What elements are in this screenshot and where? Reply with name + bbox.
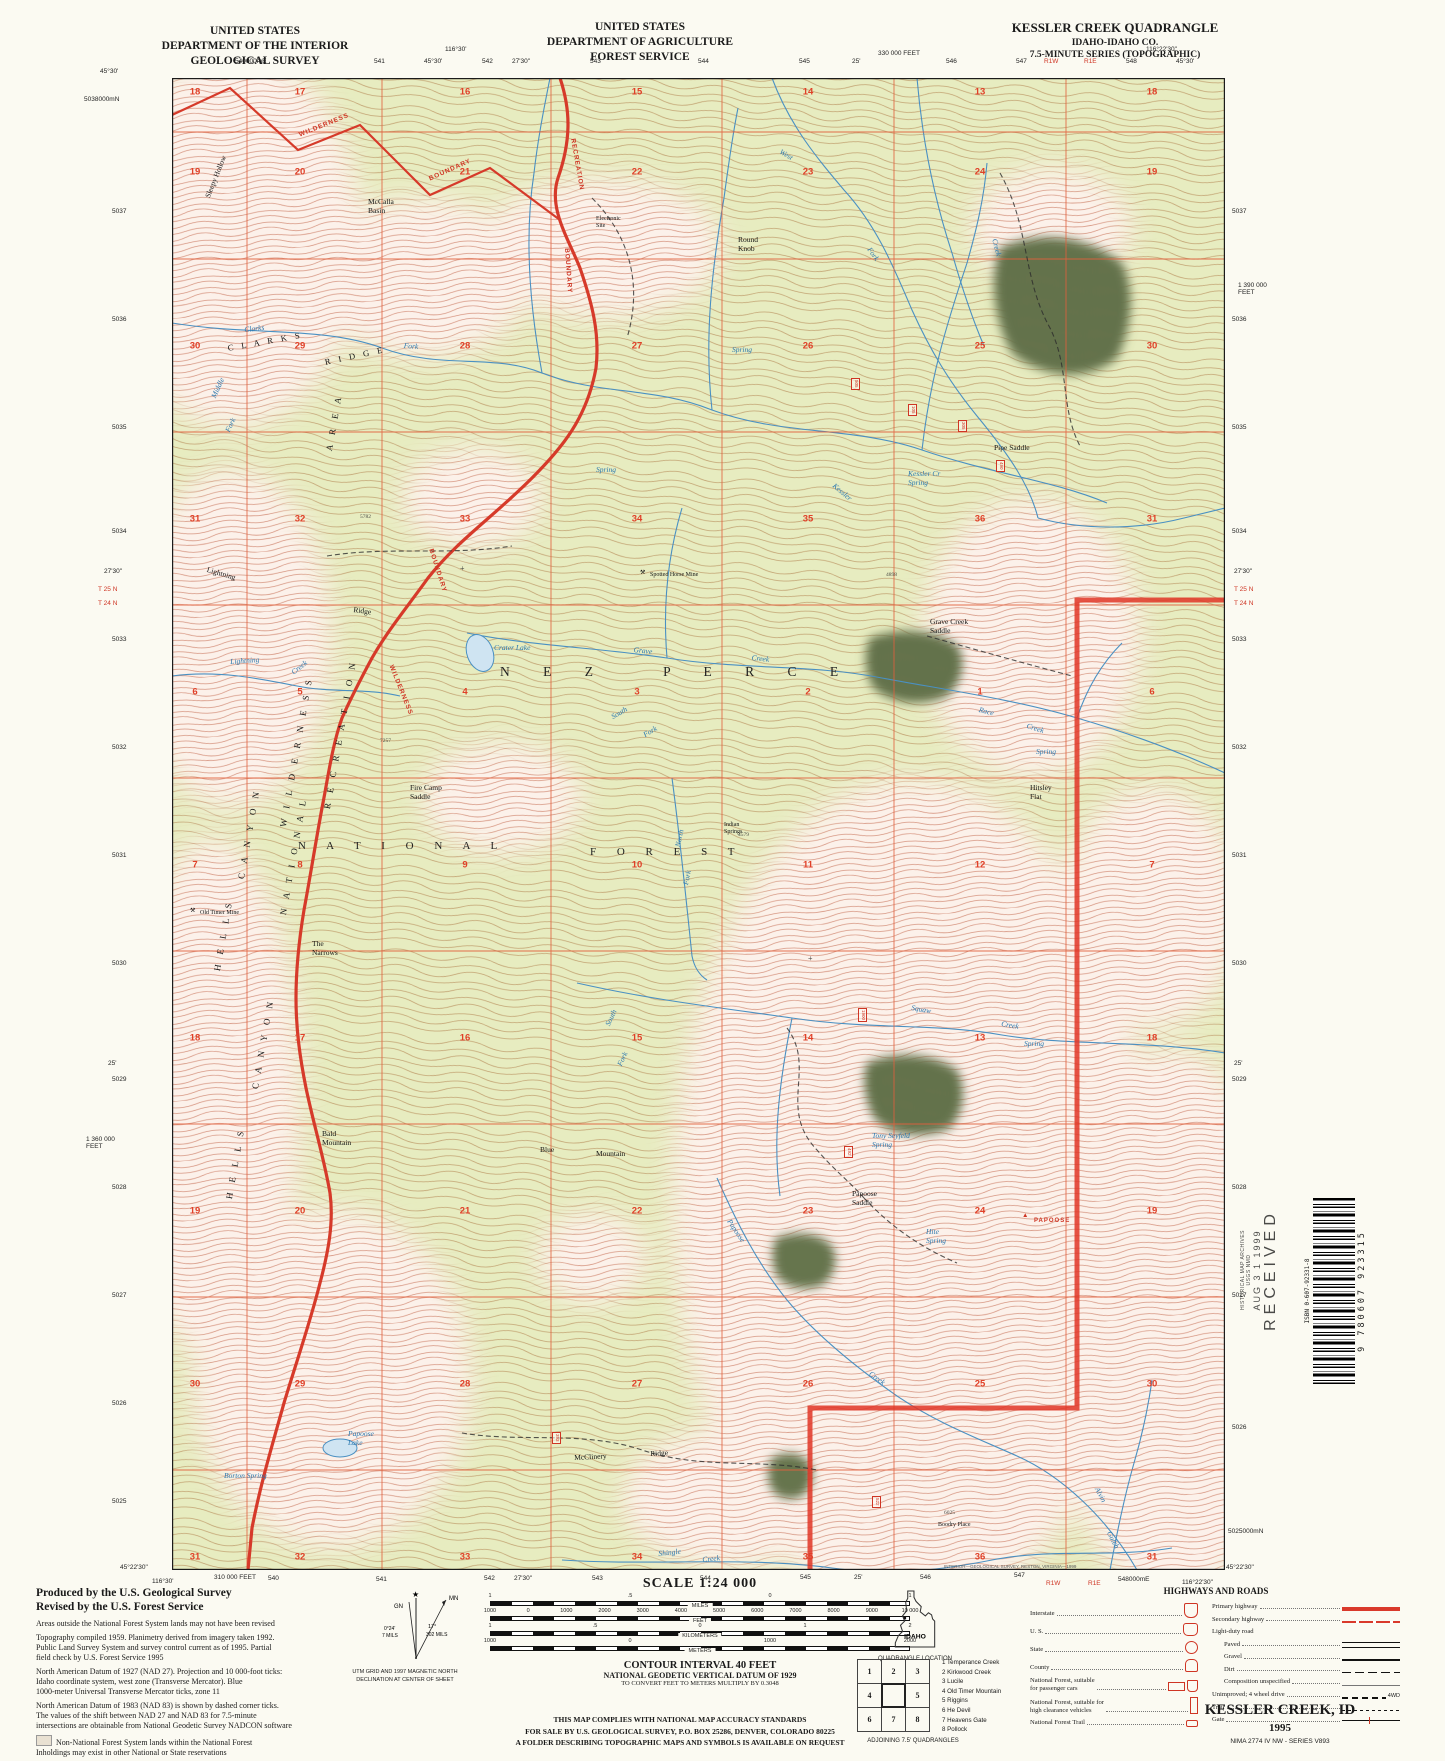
legend-row: Gravel [1212, 1653, 1400, 1661]
map-label: ▲ [1022, 1212, 1029, 1219]
svg-text:GN: GN [394, 1604, 403, 1610]
stamp-line: RECEIVED [1262, 1174, 1280, 1366]
section-number: 19 [190, 167, 201, 178]
true-north-star-icon: ★ [412, 1590, 419, 1599]
scale-tick-label: 0 [768, 1593, 771, 1599]
edge-label: 5036 [1232, 316, 1246, 323]
section-number: 4 [462, 687, 467, 698]
legend-leader [1287, 1696, 1340, 1697]
edge-label: 45°30' [100, 68, 118, 75]
legend-row: Unimproved; 4 wheel drive4WD [1212, 1691, 1400, 1699]
legend-label: National Forest, suitable for passenger … [1030, 1677, 1095, 1692]
edge-label: 5036 [112, 316, 126, 323]
note-paragraph: Non-National Forest System lands within … [36, 1735, 371, 1758]
section-number: 18 [1147, 1033, 1158, 1044]
map-label: 4579 [738, 832, 749, 838]
state-icon [1185, 1641, 1198, 1654]
section-number: 7 [192, 860, 197, 871]
legend-leader [1057, 1615, 1182, 1616]
section-number: 24 [975, 1206, 986, 1217]
edge-label: T 24 N [1234, 600, 1253, 607]
adjoining-cell: 1 [857, 1659, 882, 1684]
quad-name: KESSLER CREEK QUADRANGLE [890, 20, 1340, 37]
adjoining-caption: ADJOINING 7.5' QUADRANGLES [818, 1738, 1008, 1744]
legend-label: National Forest Trail [1030, 1719, 1085, 1727]
map-label: The Narrows [312, 940, 338, 957]
section-number: 34 [632, 1552, 643, 1563]
section-number: 9 [462, 860, 467, 871]
section-number: 31 [1147, 514, 1158, 525]
map-label: Ridge [650, 1449, 668, 1459]
section-number: 23 [803, 167, 814, 178]
edge-label: 540 [268, 1575, 279, 1582]
scale-tick-label: 0 [698, 1623, 701, 1629]
section-number: 15 [632, 1033, 643, 1044]
section-number: 25 [975, 1379, 986, 1390]
section-number: 16 [460, 1033, 471, 1044]
edge-label: 27'30" [1234, 568, 1252, 575]
adjoining-cell [881, 1683, 906, 1708]
legend-label: National Forest, suitable for high clear… [1030, 1699, 1104, 1714]
sale-note: FOR SALE BY U.S. GEOLOGICAL SURVEY, P.O.… [430, 1726, 930, 1738]
header-line: DEPARTMENT OF AGRICULTURE [470, 35, 810, 50]
edge-label: 5026 [1232, 1424, 1246, 1431]
map-artwork [172, 78, 1225, 1570]
legend-note: 4WD [1388, 1693, 1400, 1699]
edge-label: 25' [1234, 1060, 1242, 1067]
section-number: 18 [190, 87, 201, 98]
section-number: 6 [1149, 687, 1154, 698]
idaho-outline-icon: IDAHO [892, 1590, 938, 1648]
edge-label: 5026 [112, 1400, 126, 1407]
section-number: 30 [190, 341, 201, 352]
edge-label: R1W [1044, 58, 1058, 65]
legend-leader [1292, 1683, 1340, 1684]
legend-row: U. S. [1030, 1623, 1198, 1636]
section-number: 15 [632, 87, 643, 98]
map-label: PAPOOSE [1034, 1218, 1070, 1225]
section-number: 7 [1149, 860, 1154, 871]
map-series: NIMA 2774 IV NW - SERIES V893 [1145, 1738, 1415, 1745]
map-year: 1995 [1145, 1722, 1415, 1734]
edge-label: 5037 [1232, 208, 1246, 215]
section-number: 27 [632, 1379, 643, 1390]
edge-label: 45°22'30" [1226, 1564, 1254, 1571]
legend-leader [1242, 1645, 1340, 1646]
legend-label: Paved [1224, 1641, 1240, 1649]
map-label: + [460, 564, 465, 573]
edge-label: 541 [374, 58, 385, 65]
legend-row: Light-duty road [1212, 1628, 1400, 1636]
paved-icon [1342, 1642, 1400, 1648]
header-line: DEPARTMENT OF THE INTERIOR [85, 39, 425, 54]
map-label: Borton Spring [224, 1472, 267, 1481]
edge-label: 5035 [1232, 424, 1246, 431]
map-label: ⚒ [190, 908, 195, 915]
legend-leader [1045, 1633, 1181, 1634]
section-number: 33 [460, 514, 471, 525]
map-name: KESSLER CREEK, ID [1145, 1702, 1415, 1719]
dirt-icon [1342, 1672, 1400, 1674]
map-label: Grave Creek Saddle [930, 618, 968, 635]
section-number: 14 [803, 87, 814, 98]
section-number: 23 [803, 1206, 814, 1217]
section-number: 30 [1147, 1379, 1158, 1390]
map-label: Creek [751, 654, 769, 664]
map-label: Papoose Lake [348, 1430, 374, 1447]
section-number: 31 [1147, 1552, 1158, 1563]
svg-text:IDAHO: IDAHO [904, 1634, 926, 1641]
edge-label: 5025 [112, 1498, 126, 1505]
scale-tick-label: 1 [803, 1623, 806, 1629]
edge-label: 5032 [1232, 744, 1246, 751]
legend-row: Composition unspecified [1212, 1678, 1400, 1686]
note-paragraph: Topography compiled 1959. Planimetry der… [36, 1633, 371, 1663]
svg-text:7 MILS: 7 MILS [382, 1633, 399, 1639]
edge-label: 5025000mN [1228, 1528, 1263, 1535]
scale-tick-label: 2000 [598, 1608, 610, 1614]
legend-leader [1045, 1651, 1183, 1652]
legend-label: Dirt [1224, 1666, 1235, 1674]
nf-shield-icon [1187, 1680, 1198, 1692]
legend-label: Unimproved; 4 wheel drive [1212, 1691, 1285, 1699]
roads-legend-title: HIGHWAYS AND ROADS [1030, 1586, 1402, 1596]
edge-label: 5031 [112, 852, 126, 859]
county-icon [1185, 1659, 1198, 1672]
edge-label: 116°22'30" [1182, 1579, 1213, 1586]
edge-label: 330 000 FEET [878, 50, 920, 57]
usgs-topo-sheet: UNITED STATES DEPARTMENT OF THE INTERIOR… [0, 0, 1445, 1761]
stamp-line: AUG 3 1 1999 [1252, 1174, 1262, 1366]
section-number: 18 [190, 1033, 201, 1044]
map-label: Papoose Saddle [852, 1190, 877, 1207]
legend-label: County [1030, 1664, 1049, 1672]
adjoining-cell: 6 [857, 1707, 882, 1732]
section-number: 8 [297, 860, 302, 871]
section-number: 28 [460, 1379, 471, 1390]
section-number: 33 [460, 1552, 471, 1563]
edge-label: 5034 [112, 528, 126, 535]
scale-tick-label: 1000 [764, 1638, 776, 1644]
trail-number-marker: 505 [851, 378, 860, 390]
section-number: 20 [295, 1206, 306, 1217]
map-label: F O R E S T [590, 846, 744, 859]
edge-label: 5030 [112, 960, 126, 967]
accuracy-note: THIS MAP COMPLIES WITH NATIONAL MAP ACCU… [430, 1714, 930, 1726]
map-label: Grave [633, 646, 653, 657]
map-label: Mountain [596, 1150, 625, 1159]
map-label: Crater Lake [494, 644, 530, 653]
section-number: 3 [634, 687, 639, 698]
map-label: Electronic Site [596, 216, 621, 230]
edge-label: 544 [698, 58, 709, 65]
legend-leader [1097, 1689, 1166, 1690]
note-paragraph: North American Datum of 1983 (NAD 83) is… [36, 1701, 371, 1731]
revised-by: Revised by the U.S. Forest Service [36, 1600, 371, 1614]
adjoining-cell: 8 [905, 1707, 930, 1732]
map-label: 4898 [886, 572, 897, 578]
section-number: 17 [295, 1033, 306, 1044]
map-label: ⚒ [640, 570, 645, 577]
legend-label: Secondary highway [1212, 1616, 1264, 1624]
unspec-icon [1342, 1685, 1400, 1686]
section-number: 19 [1147, 1206, 1158, 1217]
scale-tick-label: 7000 [789, 1608, 801, 1614]
edge-label: 548 [1126, 58, 1137, 65]
map-label: Hitsley Flat [1030, 784, 1052, 801]
edge-label: 5031 [1232, 852, 1246, 859]
map-body[interactable]: McCalla BasinSleepy HollowC L A R K SR I… [172, 78, 1225, 1570]
map-label: 5782 [360, 514, 371, 520]
quad-series: 7.5-MINUTE SERIES (TOPOGRAPHIC) [890, 49, 1340, 61]
trail-number-marker: 490 [996, 460, 1005, 472]
adjoining-cell: 4 [857, 1683, 882, 1708]
edge-label: T 25 N [98, 586, 117, 593]
section-number: 11 [803, 860, 813, 871]
section-number: 10 [632, 860, 643, 871]
section-number: 20 [295, 167, 306, 178]
section-number: 21 [460, 167, 471, 178]
map-label: Kessler Cr Spring [908, 470, 940, 487]
trail-number-marker: 105 [908, 404, 917, 416]
scale-tick-label: 1 [488, 1593, 491, 1599]
edge-label: 5033 [1232, 636, 1246, 643]
legend-leader [1260, 1608, 1340, 1609]
map-label: Spring [732, 346, 752, 355]
interstate-icon [1184, 1603, 1198, 1618]
edge-label: 5028 [112, 1184, 126, 1191]
barcode-number: 9 780607 923315 [1357, 1188, 1367, 1394]
us-icon [1183, 1623, 1198, 1636]
scale-tick-label: .5 [628, 1593, 633, 1599]
map-label: Spring [1036, 748, 1056, 757]
section-number: 12 [975, 860, 986, 871]
scale-tick-label: 0 [527, 1608, 530, 1614]
inholdings-swatch-icon [36, 1735, 52, 1746]
edge-label: 545 [799, 58, 810, 65]
edge-label: 45°30' [424, 58, 442, 65]
map-label: Old Timer Mine [200, 910, 239, 917]
edge-label: 5029 [1232, 1076, 1246, 1083]
legend-label: Interstate [1030, 1610, 1055, 1618]
legend-row: Dirt [1212, 1666, 1400, 1674]
quad-state: IDAHO-IDAHO CO. [890, 37, 1340, 49]
legend-leader [1051, 1669, 1183, 1670]
section-number: 30 [190, 1379, 201, 1390]
map-label: Blue [540, 1146, 554, 1155]
edge-label: 116°22'30" [1146, 46, 1177, 53]
map-label: McCalla Basin [368, 198, 394, 215]
edge-label: 45°22'30" [120, 1564, 148, 1571]
svg-text:302 MILS: 302 MILS [426, 1632, 448, 1638]
section-number: 31 [190, 514, 201, 525]
trail-number-marker: 305 [958, 420, 967, 432]
scale-tick-label: 4000 [675, 1608, 687, 1614]
map-label: Creek [702, 1554, 720, 1564]
adjoining-cell: 5 [905, 1683, 930, 1708]
map-label: Spring [596, 466, 616, 475]
isbn-text: ISBN 0-607-92331-8 [1304, 1188, 1311, 1394]
trail-number-marker: 1900 [858, 1008, 867, 1022]
map-label: Boodry Place [938, 1522, 971, 1529]
map-label: N E Z P E R C E [500, 664, 853, 680]
map-label: 6025 [944, 1510, 955, 1516]
section-number: 26 [803, 341, 814, 352]
map-label: N A T I O N A L [298, 840, 506, 853]
section-number: 28 [460, 341, 471, 352]
trail-number-marker: 393 [552, 1432, 561, 1444]
map-label: McClinery [574, 1452, 607, 1462]
legend-row: Paved [1212, 1641, 1400, 1649]
produced-by: Produced by the U.S. Geological Survey [36, 1586, 371, 1600]
section-number: 35 [803, 1552, 814, 1563]
map-name-block: KESSLER CREEK, ID 1995 NIMA 2774 IV NW -… [1145, 1702, 1415, 1745]
header-line: UNITED STATES [85, 24, 425, 39]
scale-tick-label: 5000 [713, 1608, 725, 1614]
section-number: 6 [192, 687, 197, 698]
scale-tick-label: 1000 [484, 1638, 496, 1644]
section-number: 35 [803, 514, 814, 525]
section-number: 2 [805, 687, 810, 698]
scale-tick-label: 1 [488, 1623, 491, 1629]
edge-label: 25' [108, 1060, 116, 1067]
edge-label: 1 360 000 FEET [86, 1136, 115, 1150]
scale-tick-label: 1000 [560, 1608, 572, 1614]
section-number: 29 [295, 341, 306, 352]
section-number: 22 [632, 167, 643, 178]
isbn-barcode: ISBN 0-607-92331-8 9 780607 923315 [1304, 1188, 1376, 1394]
edge-label: R1E [1084, 58, 1097, 65]
edge-label: 310 000 FEET [214, 1574, 256, 1581]
edge-label: INTERIOR—GEOLOGICAL SURVEY, RESTON, VIRG… [944, 1564, 1076, 1569]
edge-label: 5038000mN [84, 96, 119, 103]
edge-label: 541 [376, 1576, 387, 1583]
section-number: 30 [1147, 341, 1158, 352]
edge-label: 540000mE [235, 58, 266, 65]
map-label: 7257 [380, 738, 391, 744]
scale-tick-label: 1000 [484, 1608, 496, 1614]
adjoining-cell: 3 [905, 1659, 930, 1684]
edge-label: 546 [946, 58, 957, 65]
scale-tick-label: 6000 [751, 1608, 763, 1614]
barcode-bars-icon [1313, 1198, 1355, 1384]
gravel-icon [1342, 1659, 1400, 1661]
header-line: UNITED STATES [470, 20, 810, 35]
edge-label: 27'30" [104, 568, 122, 575]
legend-label: State [1030, 1646, 1043, 1654]
map-label: Fire Camp Saddle [410, 784, 442, 801]
legend-leader [1266, 1620, 1340, 1621]
received-stamp: HISTORICAL MAP ARCHIVESUSGS NMDAUG 3 1 1… [1240, 1174, 1280, 1366]
section-number: 31 [190, 1552, 201, 1563]
scale-tick-label: .5 [593, 1623, 598, 1629]
scale-bar-caption: METERS [685, 1648, 716, 1654]
secondary-icon [1342, 1621, 1400, 1623]
section-number: 22 [632, 1206, 643, 1217]
legend-leader [1237, 1670, 1340, 1671]
edge-label: 5030 [1232, 960, 1246, 967]
section-number: 17 [295, 87, 306, 98]
section-number: 5 [297, 687, 302, 698]
edge-label: T 24 N [98, 600, 117, 607]
section-number: 16 [460, 87, 471, 98]
note-paragraph: Areas outside the National Forest System… [36, 1619, 371, 1629]
section-number: 21 [460, 1206, 471, 1217]
edge-label: 5027 [112, 1292, 126, 1299]
adjoining-quadrangles: 12345678 1 Temperance Creek2 Kirkwood Cr… [858, 1660, 1058, 1732]
edge-label: 5034 [1232, 528, 1246, 535]
legend-row: Interstate [1030, 1603, 1198, 1618]
section-number: 19 [190, 1206, 201, 1217]
legend-label: Primary highway [1212, 1603, 1258, 1611]
section-number: 14 [803, 1033, 814, 1044]
section-number: 32 [295, 514, 306, 525]
edge-label: 547 [1014, 1572, 1025, 1579]
map-label: Round Knob [738, 236, 758, 253]
edge-label: 5032 [112, 744, 126, 751]
map-label: Tony Seyfeld Spring [872, 1132, 910, 1149]
edge-label: T 25 N [1234, 586, 1253, 593]
edge-label: 27'30" [512, 58, 530, 65]
legend-leader [1244, 1658, 1340, 1659]
map-label: Bald Mountain [322, 1130, 351, 1147]
map-label: Pipe Saddle [994, 444, 1030, 453]
legend-row: Primary highway [1212, 1603, 1400, 1611]
header-quadrangle-title: KESSLER CREEK QUADRANGLE IDAHO-IDAHO CO.… [890, 20, 1340, 62]
adjoining-cell: 2 [881, 1659, 906, 1684]
legend-label: Light-duty road [1212, 1628, 1254, 1636]
map-label: Spring [1024, 1040, 1044, 1049]
scale-tick-label: 0 [628, 1638, 631, 1644]
edge-label: 25' [852, 58, 860, 65]
section-number: 19 [1147, 167, 1158, 178]
quadrangle-location: IDAHO QUADRANGLE LOCATION [830, 1590, 1000, 1662]
section-number: 29 [295, 1379, 306, 1390]
section-number: 1 [977, 687, 982, 698]
quad-location-dot [904, 1617, 906, 1619]
section-number: 26 [803, 1379, 814, 1390]
section-number: 13 [975, 87, 986, 98]
section-number: 36 [975, 514, 986, 525]
unimproved-icon [1342, 1697, 1386, 1698]
section-number: 13 [975, 1033, 986, 1044]
section-number: 24 [975, 167, 986, 178]
section-number: 18 [1147, 87, 1158, 98]
edge-label: 5029 [112, 1076, 126, 1083]
legend-row: County [1030, 1659, 1198, 1672]
edge-label: 5033 [112, 636, 126, 643]
edge-label: 116°30' [152, 1578, 173, 1585]
section-number: 36 [975, 1552, 986, 1563]
scale-tick-label: 3000 [637, 1608, 649, 1614]
legend-row: National Forest, suitable for passenger … [1030, 1677, 1198, 1692]
primary-icon [1342, 1607, 1400, 1611]
section-number: 32 [295, 1552, 306, 1563]
legend-row: Secondary highway [1212, 1616, 1400, 1624]
edge-label: 5035 [112, 424, 126, 431]
edge-label: 1 390 000 FEET [1238, 282, 1267, 296]
map-label: + [808, 954, 813, 963]
edge-label: 45°30' [1176, 58, 1194, 65]
edge-label: 5037 [112, 208, 126, 215]
adjoining-cell: 7 [881, 1707, 906, 1732]
legend-label: Composition unspecified [1224, 1678, 1290, 1686]
edge-label: 548000mE [1118, 1576, 1149, 1583]
legend-row: State [1030, 1641, 1198, 1654]
map-label: Hite Spring [926, 1228, 946, 1245]
section-number: 34 [632, 514, 643, 525]
trail-number-marker: 492 [844, 1146, 853, 1158]
